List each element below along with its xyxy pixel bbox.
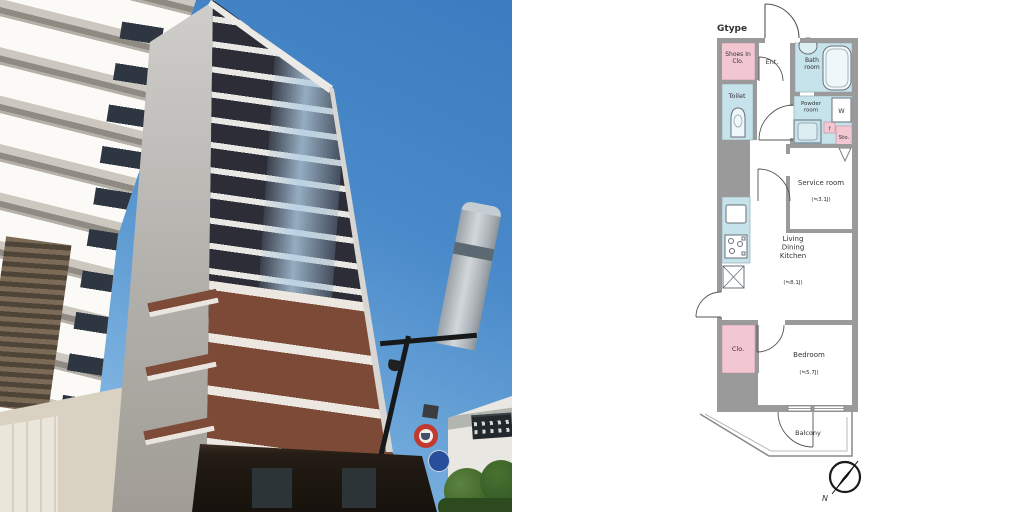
plan-title: Gtype xyxy=(717,24,747,34)
listing-image: Gtype xyxy=(0,0,1024,512)
closet-label: Clo. xyxy=(732,345,744,353)
toilet-label: Toilet xyxy=(727,92,745,100)
billboard-sign xyxy=(471,413,512,440)
compass: N xyxy=(822,461,860,503)
service-room-label: Service room xyxy=(798,179,844,187)
stove-knob xyxy=(742,237,745,240)
storage-hatch xyxy=(839,148,851,161)
compass-north-label: N xyxy=(822,494,828,503)
kitchen-sink xyxy=(726,205,746,223)
chimney-tower xyxy=(436,201,503,351)
faucet-label: f xyxy=(829,127,831,133)
windows xyxy=(788,406,844,411)
white-fence xyxy=(0,416,58,512)
sign-back xyxy=(422,404,439,419)
floor-plan-svg: Gtype xyxy=(512,0,1024,512)
bedroom-door xyxy=(757,325,784,352)
bedroom-area: (≒5.7J) xyxy=(799,370,818,376)
chimney-cap xyxy=(461,201,502,217)
building-photo xyxy=(0,0,512,512)
stove-knob xyxy=(742,252,745,255)
blue-circle-traffic-sign xyxy=(428,450,450,472)
toilet-icon xyxy=(731,108,745,137)
ldk-west-door xyxy=(696,292,721,317)
ldk-label: LivingDiningKitchen xyxy=(780,235,806,260)
powder-room-door xyxy=(759,105,793,140)
ldk-area: (≒8.1J) xyxy=(783,280,802,286)
bathroom-label: Bathroom xyxy=(804,57,820,71)
balcony-outline xyxy=(700,412,852,456)
chimney-band xyxy=(453,242,495,261)
hedge xyxy=(438,498,512,512)
entrance-label: Ent. xyxy=(766,58,779,66)
entrance-door xyxy=(765,4,799,38)
balcony-label: Balcony xyxy=(795,429,821,437)
red-circle-traffic-sign xyxy=(414,424,438,448)
floor-plan-panel: Gtype xyxy=(512,0,1024,512)
storage-label: Sto. xyxy=(839,135,850,141)
bedroom-label: Bedroom xyxy=(793,351,825,359)
powder-sink-bowl xyxy=(798,123,817,140)
service-room-area: (≒3.1J) xyxy=(811,197,830,203)
washer-label: W xyxy=(838,107,845,115)
ldk-hall-door xyxy=(758,169,790,201)
